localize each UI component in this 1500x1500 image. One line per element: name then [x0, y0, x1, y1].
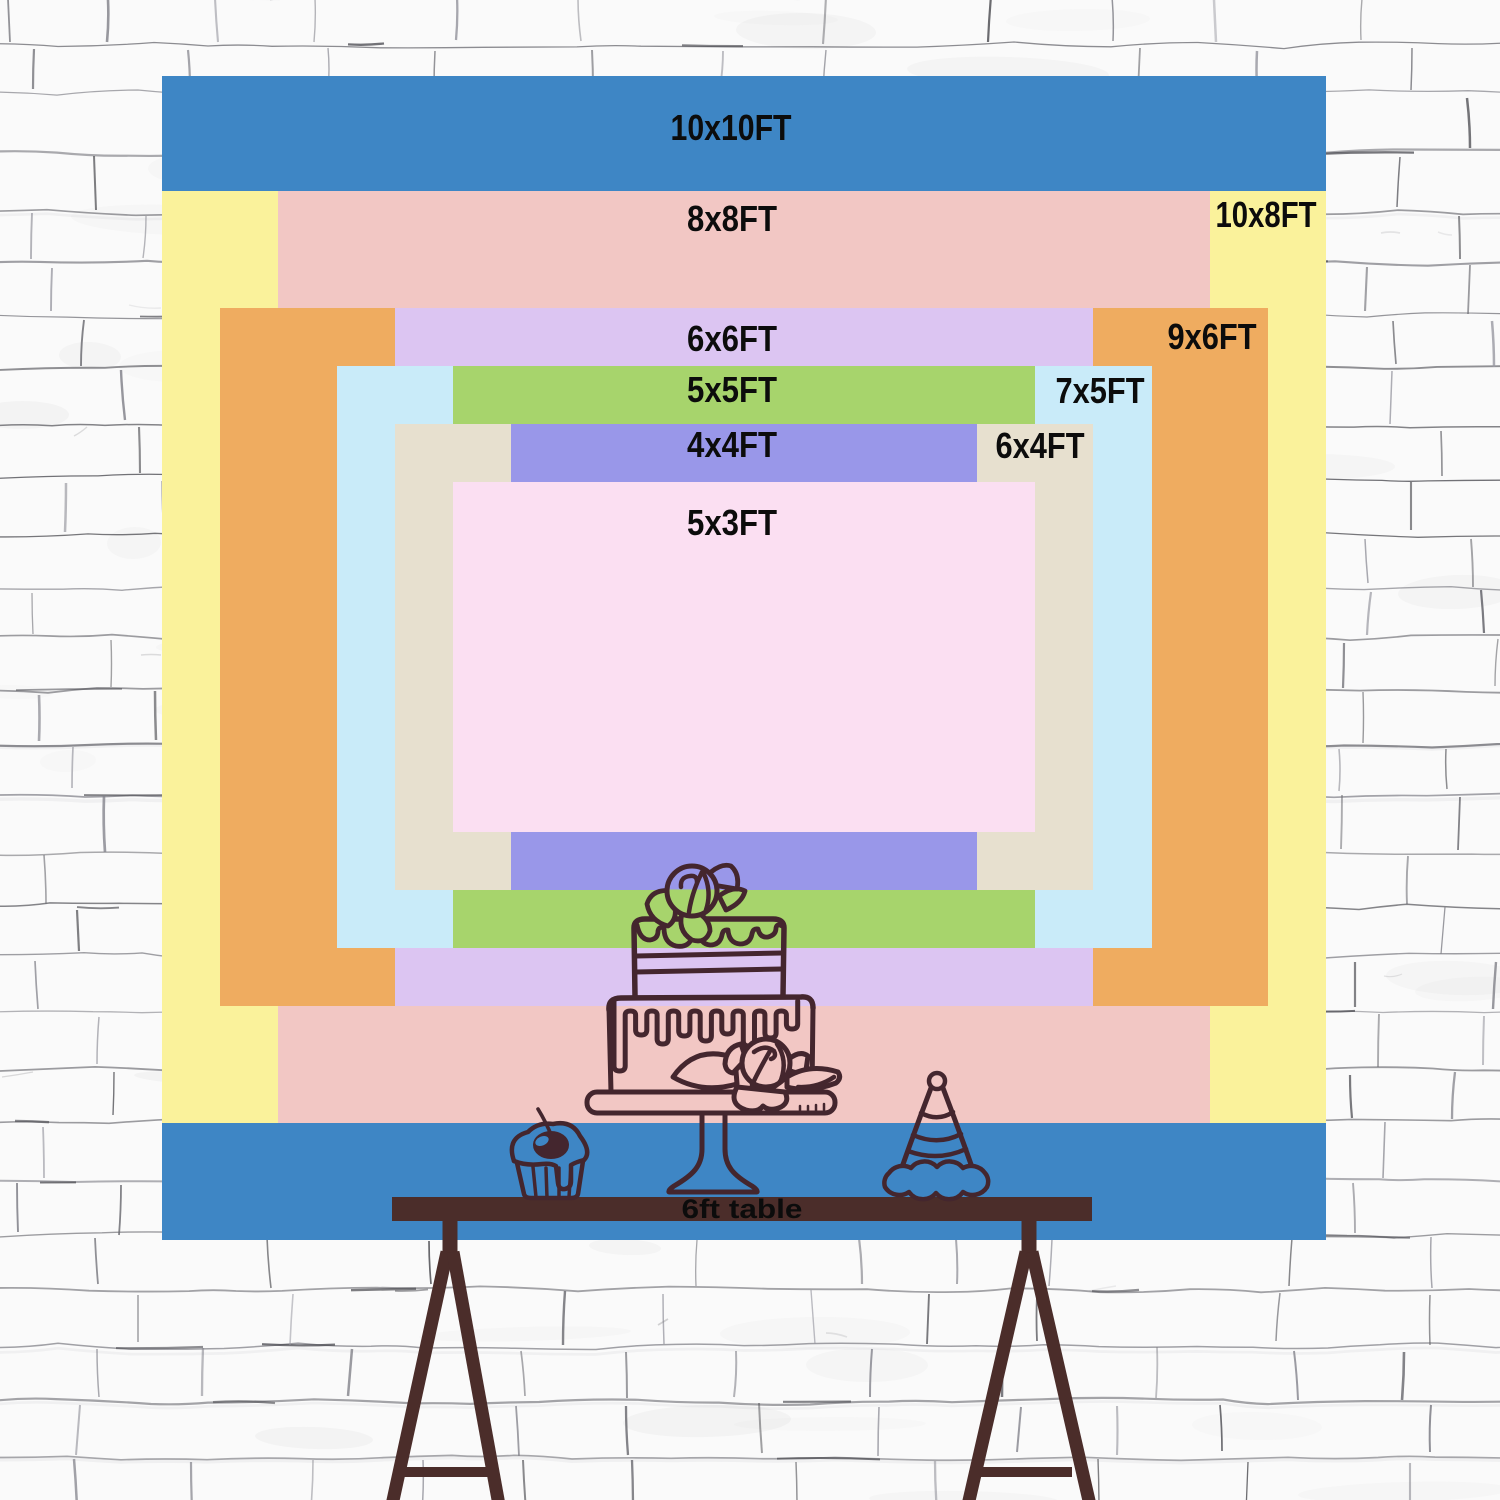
- svg-text:8x8FT: 8x8FT: [687, 198, 777, 239]
- svg-text:6x4FT: 6x4FT: [996, 425, 1085, 466]
- svg-text:9x6FT: 9x6FT: [1168, 316, 1257, 357]
- svg-text:5x5FT: 5x5FT: [687, 369, 777, 410]
- svg-text:4x4FT: 4x4FT: [687, 424, 777, 465]
- svg-text:7x5FT: 7x5FT: [1056, 370, 1145, 411]
- svg-text:6x6FT: 6x6FT: [687, 318, 777, 359]
- svg-text:10x8FT: 10x8FT: [1216, 194, 1317, 235]
- svg-text:10x10FT: 10x10FT: [671, 107, 792, 148]
- svg-text:5x3FT: 5x3FT: [687, 502, 777, 543]
- svg-text:6ft table: 6ft table: [682, 1194, 803, 1224]
